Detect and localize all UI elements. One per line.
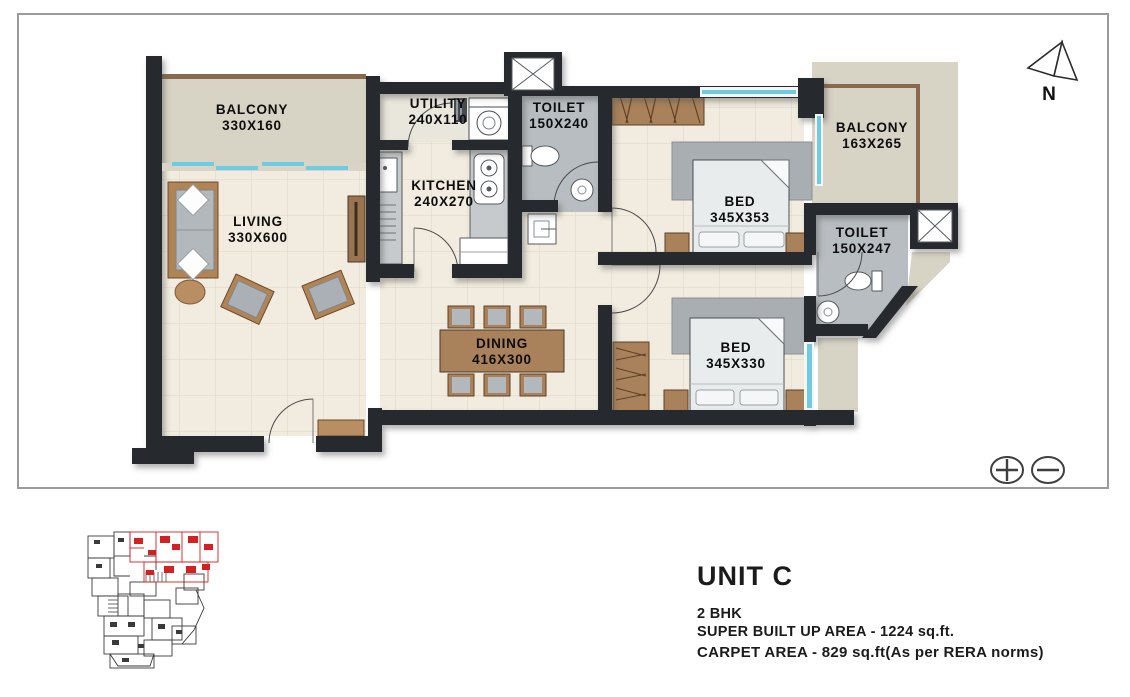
label-toilet-right-dim: 150X247 xyxy=(832,241,892,256)
balcony-right-border-v xyxy=(916,84,920,208)
wall-bedroom-divider xyxy=(598,252,812,265)
wall-living-bottom-a xyxy=(146,436,264,452)
wall-corridor-right xyxy=(598,305,612,410)
zoom-in-button[interactable] xyxy=(991,457,1023,483)
north-arrow: N xyxy=(1028,42,1077,105)
wall-bedroom-second-corner xyxy=(804,410,816,426)
label-balcony-left-name: BALCONY xyxy=(216,102,288,117)
label-kitchen-name: KITCHEN xyxy=(411,178,477,193)
window-bed-master xyxy=(702,90,796,94)
wall-left xyxy=(146,56,162,452)
wall-utility-divider-b xyxy=(452,140,508,150)
wall-kitchen-right xyxy=(508,88,522,278)
label-toilet-top-dim: 150X240 xyxy=(529,116,589,131)
nightstand-second-left xyxy=(664,390,688,412)
window-living-1 xyxy=(172,162,214,166)
label-balcony-right-dim: 163X265 xyxy=(842,136,902,151)
window-balcony-right xyxy=(817,116,821,184)
wall-toilet-right-left-b xyxy=(804,296,816,342)
label-kitchen-dim: 240X270 xyxy=(414,194,474,209)
carpet-area: CARPET AREA - 829 sq.ft(As per RERA norm… xyxy=(697,644,1044,662)
window-living-3 xyxy=(262,162,304,166)
label-bed-second-name: BED xyxy=(721,340,752,355)
wall-toilet-right-left-a xyxy=(804,203,816,255)
wall-toilet-right-top xyxy=(804,203,920,215)
wall-corner-block xyxy=(798,78,824,118)
label-bed-master-name: BED xyxy=(725,194,756,209)
label-living-dim: 330X600 xyxy=(228,230,288,245)
key-plan xyxy=(88,532,218,668)
unit-title: UNIT C xyxy=(697,561,1044,592)
wall-kitchen-left xyxy=(366,76,380,282)
beige-wedge xyxy=(906,252,950,306)
wall-toilet-top-bottom xyxy=(518,200,558,212)
balcony-left-railing xyxy=(162,74,366,79)
dining-set xyxy=(440,306,564,396)
north-label: N xyxy=(1042,84,1056,105)
key-plan-unit-highlight xyxy=(130,532,218,582)
floor-plan-page: BALCONY 330X160 UTILITY 240X110 TOILET 1… xyxy=(0,0,1130,697)
sofa xyxy=(168,182,218,280)
toilet-top-wc xyxy=(522,146,559,166)
wardrobe-second xyxy=(613,342,649,412)
label-utility-name: UTILITY xyxy=(410,96,467,111)
label-utility-dim: 240X110 xyxy=(409,112,468,127)
wall-utility-divider-a xyxy=(380,140,408,150)
wall-kitchen-bottom-a xyxy=(366,264,414,278)
super-built-up-area: SUPER BUILT UP AREA - 1224 sq.ft. xyxy=(697,624,1044,642)
nightstand-master-left xyxy=(665,233,689,253)
side-table-round xyxy=(175,280,205,304)
wall-toilet-top-right xyxy=(598,86,612,212)
shoe-bench xyxy=(318,420,364,436)
wall-utility-top xyxy=(366,82,510,94)
duct-box xyxy=(528,214,556,244)
window-living-2 xyxy=(216,166,258,170)
label-dining-name: DINING xyxy=(476,336,528,351)
wall-bottom-main xyxy=(368,410,854,425)
unit-info-block: UNIT C 2 BHK SUPER BUILT UP AREA - 1224 … xyxy=(697,561,1044,662)
label-bed-master-dim: 345X353 xyxy=(710,210,770,225)
key-plan-outline xyxy=(88,532,204,668)
label-toilet-top-name: TOILET xyxy=(533,100,586,115)
balcony-right-border-h xyxy=(810,84,920,88)
zoom-controls[interactable] xyxy=(991,457,1064,483)
label-toilet-right-name: TOILET xyxy=(836,225,889,240)
window-bed-second xyxy=(807,344,812,408)
unit-type: 2 BHK xyxy=(697,606,1044,624)
zoom-out-button[interactable] xyxy=(1032,457,1064,483)
label-balcony-right-name: BALCONY xyxy=(836,120,908,135)
tv-console xyxy=(348,196,365,262)
label-balcony-left-dim: 330X160 xyxy=(222,118,282,133)
label-dining-dim: 416X300 xyxy=(472,352,532,367)
toilet-right-basin xyxy=(817,301,839,323)
wardrobe-master xyxy=(612,94,704,125)
wall-toilet-right-bottom xyxy=(816,324,868,336)
toilet-top-basin xyxy=(571,179,593,201)
window-living-4 xyxy=(306,166,348,170)
side-strip-floor xyxy=(818,338,858,412)
label-bed-second-dim: 345X330 xyxy=(706,356,766,371)
label-living-name: LIVING xyxy=(233,214,283,229)
